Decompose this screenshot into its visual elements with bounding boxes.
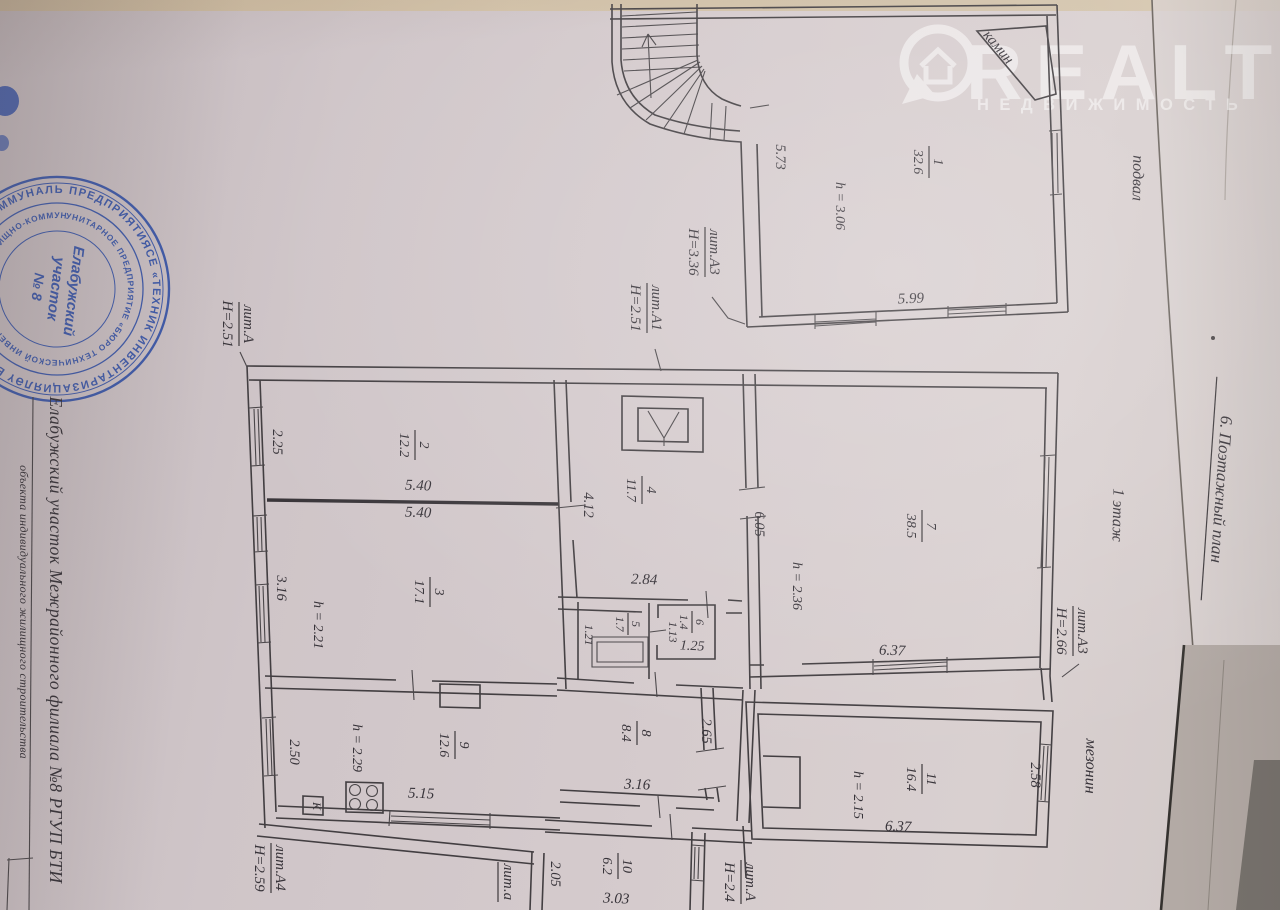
room-area: 17.1 <box>411 580 426 605</box>
dim: 6.37 <box>879 643 907 660</box>
stamp-center-line3: № 8 <box>28 272 47 302</box>
litera-name: лит.А <box>742 862 758 902</box>
litera-name: лит.А1 <box>648 284 664 330</box>
door-tick <box>670 814 672 840</box>
door-tick <box>696 748 726 790</box>
dim: 3.03 <box>602 890 630 907</box>
svg-text:ПРЕДПРИЯТИЯСЕ «ТЕХНИК ИНВЕНТАР: ПРЕДПРИЯТИЯСЕ «ТЕХНИК ИНВЕНТАРИЗАЦИЯЛӘҮ … <box>0 172 174 406</box>
dim: 5.40 <box>405 478 432 495</box>
room-number: 9 <box>456 742 471 749</box>
room-height: h = 2.15 <box>850 771 865 819</box>
litera-height: Н=2.51 <box>219 299 235 347</box>
svg-text:Елабужский участок Межрайонног: Елабужский участок Межрайонного филиала … <box>46 396 66 885</box>
room-label-8: 8 8.4 <box>618 721 653 745</box>
wall-niche <box>440 684 480 708</box>
litera-height: Н=2.59 <box>251 843 267 892</box>
stamp-ring-outer-text: ПРЕДПРИЯТИЯСЕ «ТЕХНИК ИНВЕНТАРИЗАЦИЯЛӘҮ … <box>0 172 174 406</box>
room-label-11: 11 16.4 <box>903 764 938 794</box>
litera-height: Н=2.4 <box>721 861 737 902</box>
room-number: 7 <box>923 523 938 531</box>
room-area: 12.2 <box>396 433 411 458</box>
dim: 4.12 <box>580 492 596 517</box>
room-label-5: 5 1.7 <box>613 613 643 635</box>
closet <box>763 756 800 808</box>
room-number: 1 <box>930 159 945 166</box>
window <box>262 717 278 776</box>
basement-label: подвал <box>1129 155 1147 201</box>
litera-name: лит.А <box>240 304 256 344</box>
watermark-tagline: НЕДВИЖИМОСТЬ <box>977 96 1248 114</box>
litera-label-first-a4: лит.А4 Н=2.59 <box>251 843 288 893</box>
stair-symbol <box>622 396 703 452</box>
dim: 5.40 <box>405 505 432 522</box>
margin-caption: Елабужский участок Межрайонного филиала … <box>46 396 66 885</box>
litera-name: лит.а <box>500 863 516 900</box>
dim: 5.99 <box>897 291 924 308</box>
bti-stamp: ПРЕДПРИЯТИЯСЕ «ТЕХНИК ИНВЕНТАРИЗАЦИЯЛӘҮ … <box>0 86 182 414</box>
first-floor-walls <box>247 366 1058 910</box>
room-label-4: 4 11.7 <box>623 476 658 504</box>
stair-direction-arrow <box>642 34 656 98</box>
floor-plan-drawing: REALT НЕДВИЖИМОСТЬ ПРЕДПРИЯТИЯСЕ «ТЕХНИК… <box>0 0 1280 910</box>
room-height: h = 2.36 <box>789 562 804 610</box>
room-area: 38.5 <box>903 513 918 539</box>
room-divider-wall <box>267 500 559 504</box>
room-number: 3 <box>431 588 446 596</box>
door-tick <box>750 105 769 108</box>
room-number: 5 <box>629 621 643 627</box>
door-tick <box>650 630 666 632</box>
room-label-6: 6 1.4 <box>677 611 707 633</box>
house-roof-icon <box>921 50 955 66</box>
dim: 5.73 <box>772 144 788 169</box>
leader-lines <box>240 297 1079 677</box>
window <box>1037 455 1055 568</box>
stamp-fragment <box>0 86 19 116</box>
dim: 2.65 <box>698 718 714 743</box>
ink-speck <box>1211 336 1215 340</box>
room-label-7: 7 38.5 <box>903 510 938 542</box>
room-area: 1.7 <box>613 617 627 633</box>
dim: 2.50 <box>286 739 302 765</box>
kitchen-marker: К <box>310 801 324 811</box>
floor-plan-photo: REALT НЕДВИЖИМОСТЬ ПРЕДПРИЯТИЯСЕ «ТЕХНИК… <box>0 0 1280 910</box>
litera-label-first-a3: лит.А3 Н=2.66 <box>1053 606 1090 656</box>
room-height: h = 2.21 <box>310 601 325 649</box>
room-label-1: 1 32.6 <box>910 146 945 178</box>
margin-caption-small: объекта индивидуального жилищного строит… <box>17 465 31 759</box>
dim: 2.25 <box>269 429 285 454</box>
room-height: h = 2.29 <box>349 724 364 772</box>
litera-name: лит.А3 <box>706 228 722 274</box>
litera-label-mezz-a: лит.А Н=2.4 <box>721 860 758 904</box>
litera-height: Н=2.51 <box>627 283 643 331</box>
stair-rail <box>697 4 741 106</box>
watermark: REALT НЕДВИЖИМОСТЬ <box>902 28 1280 116</box>
litera-label-first-a: лит.А Н=2.51 <box>219 299 256 347</box>
litera-height: Н=2.66 <box>1053 606 1069 655</box>
window <box>691 845 705 881</box>
room-area: 16.4 <box>903 767 918 792</box>
room-number: 8 <box>638 730 653 737</box>
dim: 3.16 <box>273 574 289 601</box>
room-area: 6.2 <box>599 857 614 875</box>
litera-name: лит.А3 <box>1074 607 1090 653</box>
room-number: 4 <box>643 487 658 494</box>
mezzanine-label: мезонин <box>1082 737 1100 793</box>
room-area: 8.4 <box>618 724 633 742</box>
room-label-9: 9 12.6 <box>436 731 471 759</box>
door-tick <box>658 796 660 818</box>
room-number: 11 <box>923 773 938 786</box>
room-area: 1.4 <box>677 615 691 630</box>
door-tick <box>412 670 414 700</box>
room-height: h = 3.06 <box>832 182 847 230</box>
first-floor-label: 1 этаж <box>1109 488 1127 542</box>
room-label-3: 3 17.1 <box>411 577 446 607</box>
gas-stove <box>346 782 383 813</box>
dim: 2.05 <box>547 861 563 886</box>
room-number: 2 <box>416 442 431 449</box>
house-body-icon <box>926 66 950 82</box>
room-label-2: 2 12.2 <box>396 430 431 460</box>
stamp-fragment <box>0 135 9 151</box>
room-number: 6 <box>693 619 707 625</box>
stair-treads <box>622 12 701 71</box>
dim: 1.25 <box>680 638 705 654</box>
room-label-10: 10 6.2 <box>599 853 634 879</box>
dim: 6.37 <box>885 819 913 836</box>
dim: 2.84 <box>631 572 658 589</box>
room-area: 12.6 <box>436 733 451 758</box>
dim: 2.58 <box>1027 762 1043 788</box>
room-area: 32.6 <box>910 149 925 175</box>
dim: 3.16 <box>623 777 651 794</box>
dim: 6.05 <box>751 511 767 536</box>
door-tick <box>655 672 657 697</box>
litera-label-basement-a1: лит.А1 Н=2.51 <box>627 283 664 333</box>
litera-height: Н=3.36 <box>685 227 701 276</box>
room-area: 11.7 <box>623 478 638 502</box>
room-number: 10 <box>619 859 634 873</box>
svg-text:объекта индивидуального жилищн: объекта индивидуального жилищного строит… <box>17 465 31 759</box>
bathtub <box>592 637 648 667</box>
litera-name: лит.А4 <box>272 844 288 891</box>
dim: 1.21 <box>582 625 596 646</box>
litera-label-veranda-a: лит.а <box>498 862 516 902</box>
dim: 5.15 <box>408 786 435 803</box>
litera-label-basement-a3: лит.А3 Н=3.36 <box>685 227 722 277</box>
